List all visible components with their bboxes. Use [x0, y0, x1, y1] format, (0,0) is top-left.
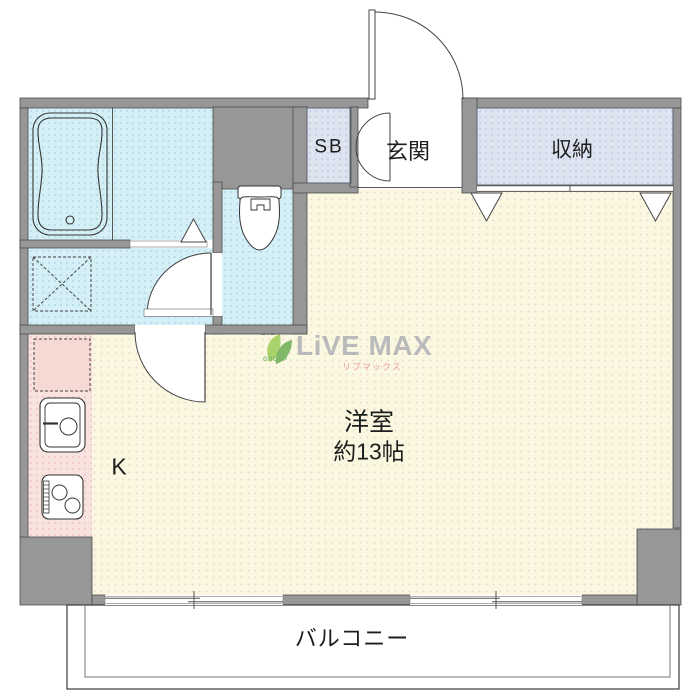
entrance-label: 玄関 [386, 141, 430, 163]
sink-icon [40, 398, 85, 452]
bath-opening [130, 219, 207, 247]
closet-sliding-track [477, 186, 673, 192]
entrance-double-door-icon [356, 113, 390, 181]
partition-lines [113, 108, 674, 240]
washing-machine-pan-icon [33, 257, 91, 311]
main-room-label: 洋室 [344, 411, 394, 436]
opening-triangle-icon [640, 193, 671, 221]
opening-triangle-icon [471, 193, 502, 221]
main-room-size-label: 約13帖 [333, 441, 405, 464]
stove-icon [42, 475, 83, 519]
shoe-box-label: SB [314, 138, 343, 157]
floorplan: LIVE GROUP LiVE MAX リブマックス [0, 0, 700, 700]
balcony-label: バルコニー [295, 628, 410, 650]
toilet-icon [238, 186, 281, 250]
sliding-window-right [410, 591, 582, 609]
bathtub-icon [33, 113, 107, 235]
kitchen-label: K [111, 456, 126, 479]
refrigerator-space-icon [34, 339, 90, 391]
storage-label: 収納 [551, 140, 593, 161]
sliding-window-left [105, 591, 283, 609]
room-door-swing-icon [135, 325, 205, 402]
closet-opening-triangles [471, 193, 671, 221]
front-door-swing-icon [369, 10, 463, 99]
toilet-door-swing-icon [144, 253, 222, 317]
opening-triangle-icon [181, 219, 206, 242]
